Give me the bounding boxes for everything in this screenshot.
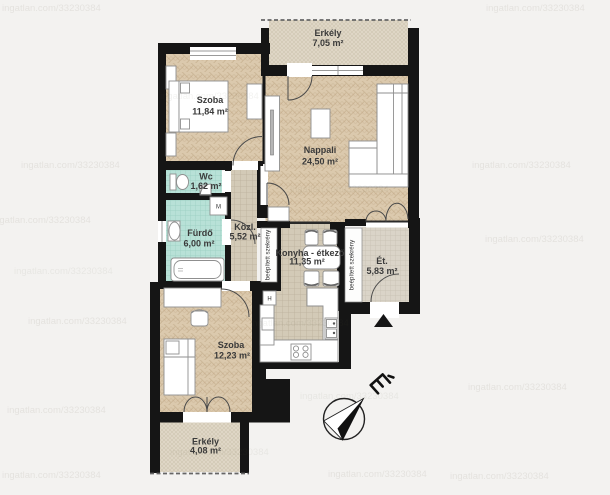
svg-text:ingatlan.com/33230384: ingatlan.com/33230384 (468, 382, 567, 393)
svg-text:Ét.: Ét. (376, 256, 388, 266)
svg-text:ingatlan.com/33230384: ingatlan.com/33230384 (485, 234, 584, 245)
svg-text:ingatlan.com/33230384: ingatlan.com/33230384 (14, 266, 113, 277)
svg-text:ingatlan.com/33230384: ingatlan.com/33230384 (0, 215, 91, 226)
svg-text:5,52 m²: 5,52 m² (229, 232, 260, 242)
svg-text:ingatlan.com/33230384: ingatlan.com/33230384 (472, 160, 571, 171)
svg-text:Wc: Wc (199, 172, 213, 182)
svg-text:ingatlan.com/33230384: ingatlan.com/33230384 (290, 184, 389, 195)
svg-text:Nappali: Nappali (304, 145, 337, 155)
svg-text:ingatlan.com/33230384: ingatlan.com/33230384 (250, 318, 349, 329)
svg-text:ingatlan.com/33230384: ingatlan.com/33230384 (2, 3, 101, 14)
svg-text:Erkély: Erkély (314, 28, 341, 38)
svg-text:beépített szekrény: beépített szekrény (264, 229, 271, 280)
svg-text:7,05 m²: 7,05 m² (312, 38, 343, 48)
svg-text:11,84 m²: 11,84 m² (192, 107, 228, 117)
svg-text:ingatlan.com/33230384: ingatlan.com/33230384 (450, 471, 549, 482)
svg-text:ingatlan.com/33230384: ingatlan.com/33230384 (170, 447, 269, 458)
svg-text:11,35 m²: 11,35 m² (289, 257, 325, 267)
svg-text:beépített szekrény: beépített szekrény (349, 239, 356, 290)
svg-text:5,83 m²: 5,83 m² (366, 266, 397, 276)
svg-text:ingatlan.com/33230384: ingatlan.com/33230384 (2, 470, 101, 481)
svg-text:ingatlan.com/33230384: ingatlan.com/33230384 (328, 469, 427, 480)
svg-text:ingatlan.com/33230384: ingatlan.com/33230384 (28, 316, 127, 327)
svg-text:M: M (216, 205, 221, 211)
svg-text:Közl.: Közl. (234, 222, 256, 232)
svg-text:24,50 m²: 24,50 m² (302, 157, 338, 167)
svg-text:Szoba: Szoba (218, 340, 245, 350)
svg-text:ingatlan.com/33230384: ingatlan.com/33230384 (486, 3, 585, 14)
svg-text:ingatlan.com/33230384: ingatlan.com/33230384 (160, 91, 259, 102)
svg-text:Fürdő: Fürdő (187, 228, 213, 238)
svg-text:12,23 m²: 12,23 m² (214, 351, 250, 361)
svg-text:ingatlan.com/33230384: ingatlan.com/33230384 (7, 405, 106, 416)
svg-text:ingatlan.com/33230384: ingatlan.com/33230384 (300, 391, 399, 402)
svg-text:ingatlan.com/33230384: ingatlan.com/33230384 (21, 160, 120, 171)
svg-text:6,00 m²: 6,00 m² (183, 239, 214, 249)
svg-text:1,62 m²: 1,62 m² (190, 181, 221, 191)
svg-text:H: H (267, 297, 271, 303)
